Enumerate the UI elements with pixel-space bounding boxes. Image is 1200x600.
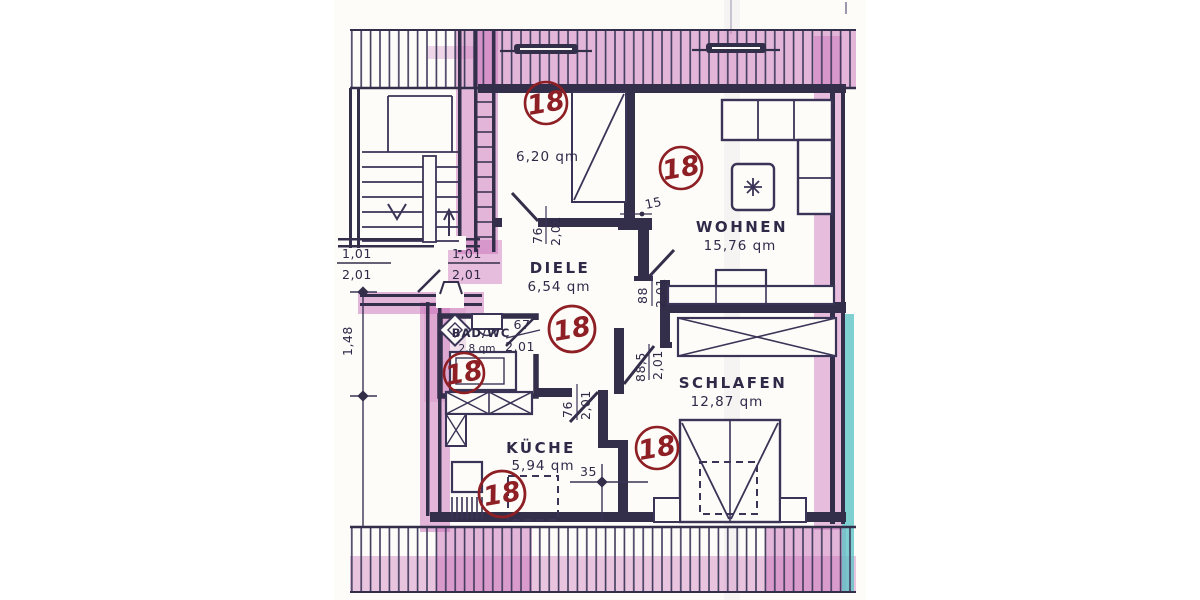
unit-stamp-kueche: 18 xyxy=(479,471,525,517)
room-schlafen-area: 12,87 qm xyxy=(691,394,764,410)
door-schlafen-height: 2,01 xyxy=(650,350,665,380)
unit-stamp-bad: 18 xyxy=(443,353,485,393)
bottom-roof-hatch xyxy=(350,527,856,592)
door-kueche-width: 76 xyxy=(560,401,575,418)
room-abstellraum-area: 6,20 qm xyxy=(516,149,579,165)
door-schlafen-width: 88,5 xyxy=(633,352,648,382)
top-roof-hatch xyxy=(350,30,856,88)
room-diele-area: 6,54 qm xyxy=(527,279,590,295)
unit-number: 18 xyxy=(525,85,567,122)
room-schlafen-name: SCHLAFEN xyxy=(679,374,788,392)
entry-left-height: 2,01 xyxy=(342,267,372,282)
door-wohnen-height: 2,01 xyxy=(653,278,668,308)
room-abstellraum-fixture xyxy=(572,92,626,202)
door-bad-width: 67 xyxy=(514,317,531,332)
unit-number: 18 xyxy=(443,355,485,392)
kitchen-offset-label: 35 xyxy=(580,464,597,479)
entry-right-height: 2,01 xyxy=(452,267,482,282)
stair-run-label: 1,48 xyxy=(340,326,355,356)
unit-number: 18 xyxy=(481,476,523,513)
unit-number: 18 xyxy=(551,311,593,348)
door-wohnen-width: 88 xyxy=(635,287,650,304)
unit-number: 18 xyxy=(660,150,702,187)
unit-number: 18 xyxy=(636,430,678,467)
unit-stamp-schlafen: 18 xyxy=(636,427,678,469)
room-kueche-name: KÜCHE xyxy=(506,438,576,457)
door-kueche-height: 2,01 xyxy=(578,390,593,420)
entry-right-width: 1,01 xyxy=(452,246,482,261)
room-kueche-area: 5,94 qm xyxy=(511,458,574,474)
room-diele-name: DIELE xyxy=(530,259,591,277)
room-wohnen-area: 15,76 qm xyxy=(704,238,777,254)
unit-stamp-abstellraum: 18 xyxy=(525,82,567,124)
unit-stamp-diele: 18 xyxy=(549,306,595,352)
room-wohnen-name: WOHNEN xyxy=(696,218,788,236)
door-abstell-width: 76 xyxy=(530,227,545,244)
scanned-floor-plan: 1,48 15 35 1,01 2,01 1,01 2,01 76 2,01 8… xyxy=(0,0,1200,600)
unit-stamp-wohnen: 18 xyxy=(660,147,702,189)
door-bad-height: 2,01 xyxy=(505,339,535,354)
entry-left-width: 1,01 xyxy=(342,246,372,261)
door-abstell-height: 2,01 xyxy=(548,216,563,246)
floorplan-svg: 1,48 15 35 1,01 2,01 1,01 2,01 76 2,01 8… xyxy=(0,0,1200,600)
room-bad-name: BAD/WC xyxy=(452,326,511,340)
